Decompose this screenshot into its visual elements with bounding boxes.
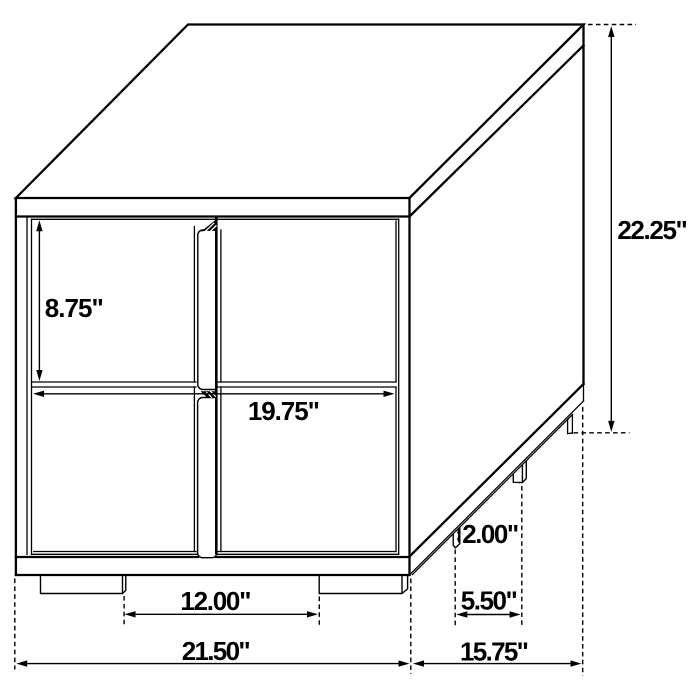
svg-text:5.50": 5.50": [461, 586, 518, 616]
svg-text:12.00": 12.00": [180, 586, 251, 616]
svg-text:19.75": 19.75": [248, 396, 320, 426]
svg-text:15.75": 15.75": [460, 636, 529, 666]
svg-text:2.00": 2.00": [462, 519, 519, 549]
svg-text:8.75": 8.75": [45, 293, 104, 323]
svg-text:22.25": 22.25": [617, 215, 688, 245]
svg-text:21.50": 21.50": [182, 636, 251, 666]
